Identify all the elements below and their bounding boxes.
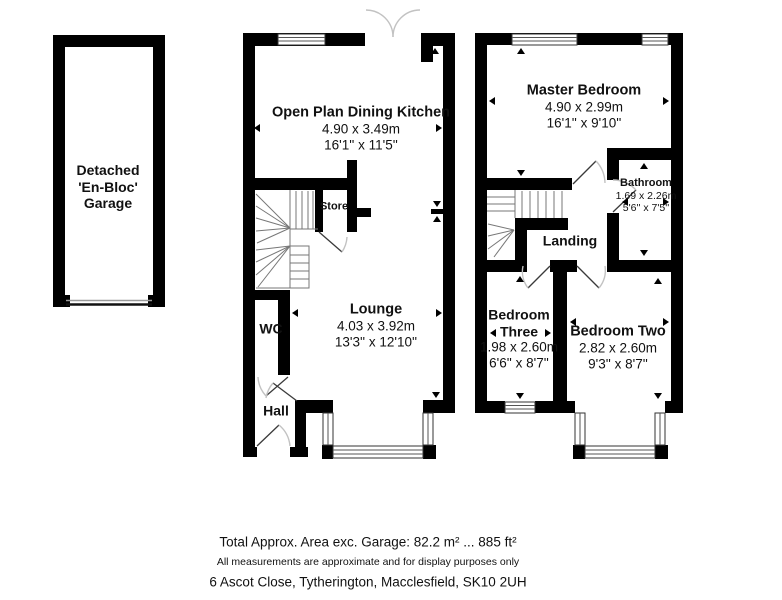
bedroom-two-door [577,266,605,288]
kitchen-label: Open Plan Dining Kitchen 4.90 x 3.49m 16… [272,105,450,154]
floorplan-drawing [0,0,782,600]
bathroom-label: Bathroom 1.69 x 2.26m 5'6'' x 7'5'' [616,177,677,215]
landing-label: Landing [543,233,597,250]
master-window-small [642,34,668,45]
bedroom-three-label: Bedroom Three 1.98 x 2.60m 6'6'' x 8'7'' [479,307,559,372]
wall-measure-stub [431,209,443,214]
hall-label: Hall [263,403,289,420]
bedroom-two-label: Bedroom Two 2.82 x 2.60m 9'3'' x 8'7'' [570,324,666,373]
kitchen-window [278,34,325,45]
french-doors [366,10,420,37]
master-bedroom-door [573,161,605,184]
master-window-large [512,34,577,45]
front-door [257,425,290,446]
wc-door [258,377,288,396]
bedroom-two-bay-window [575,413,665,458]
garage-door [66,301,152,305]
lounge-bay-window [323,413,433,458]
bedroom-three-window [505,402,535,413]
store-door [319,232,347,252]
lounge-label: Lounge 4.03 x 3.92m 13'3'' x 12'10'' [335,302,417,351]
total-area-text: Total Approx. Area exc. Garage: 82.2 m² … [219,535,516,550]
wc-label: WC [259,321,282,338]
floorplan-canvas: Detached 'En-Bloc' Garage Open Plan Dini… [0,0,782,600]
store-label: Store [320,201,348,214]
ground-floor-plan [243,10,455,459]
master-bedroom-label: Master Bedroom 4.90 x 2.99m 16'1'' x 9'1… [527,83,641,132]
disclaimer-text: All measurements are approximate and for… [217,556,519,568]
staircase-ground [256,190,318,288]
address-text: 6 Ascot Close, Tytherington, Macclesfiel… [209,575,526,590]
garage-label: Detached 'En-Bloc' Garage [76,162,139,212]
